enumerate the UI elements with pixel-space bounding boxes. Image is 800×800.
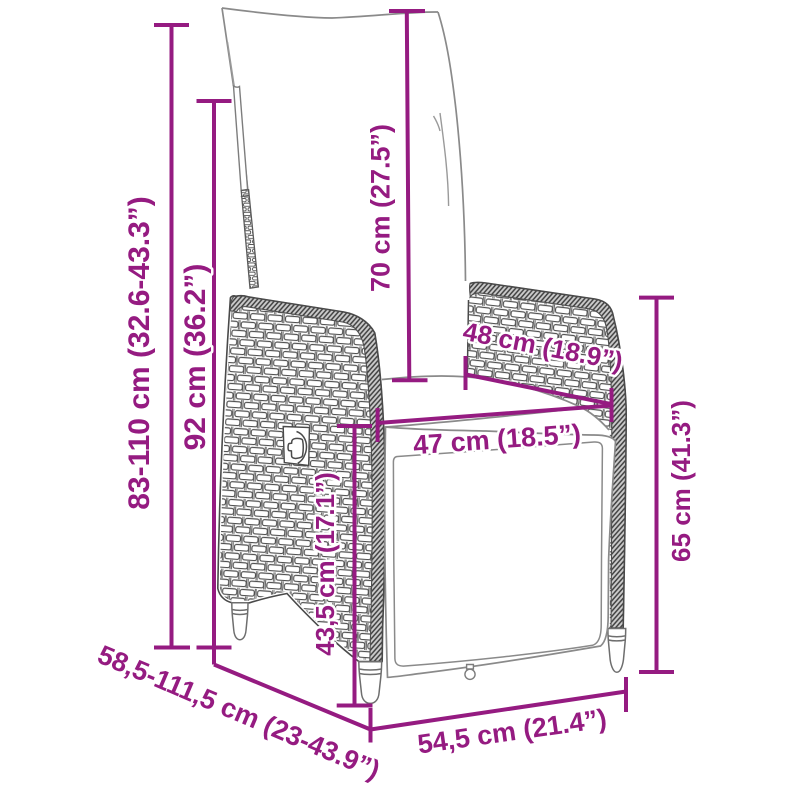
svg-text:65 cm (41.3”): 65 cm (41.3”) (666, 400, 696, 562)
svg-text:92 cm (36.2”): 92 cm (36.2”) (179, 264, 212, 451)
svg-text:83-110 cm (32.6-43.3”): 83-110 cm (32.6-43.3”) (123, 196, 156, 510)
svg-text:43,5 cm (17.1”): 43,5 cm (17.1”) (310, 472, 340, 656)
svg-text:70 cm (27.5”): 70 cm (27.5”) (365, 124, 395, 292)
